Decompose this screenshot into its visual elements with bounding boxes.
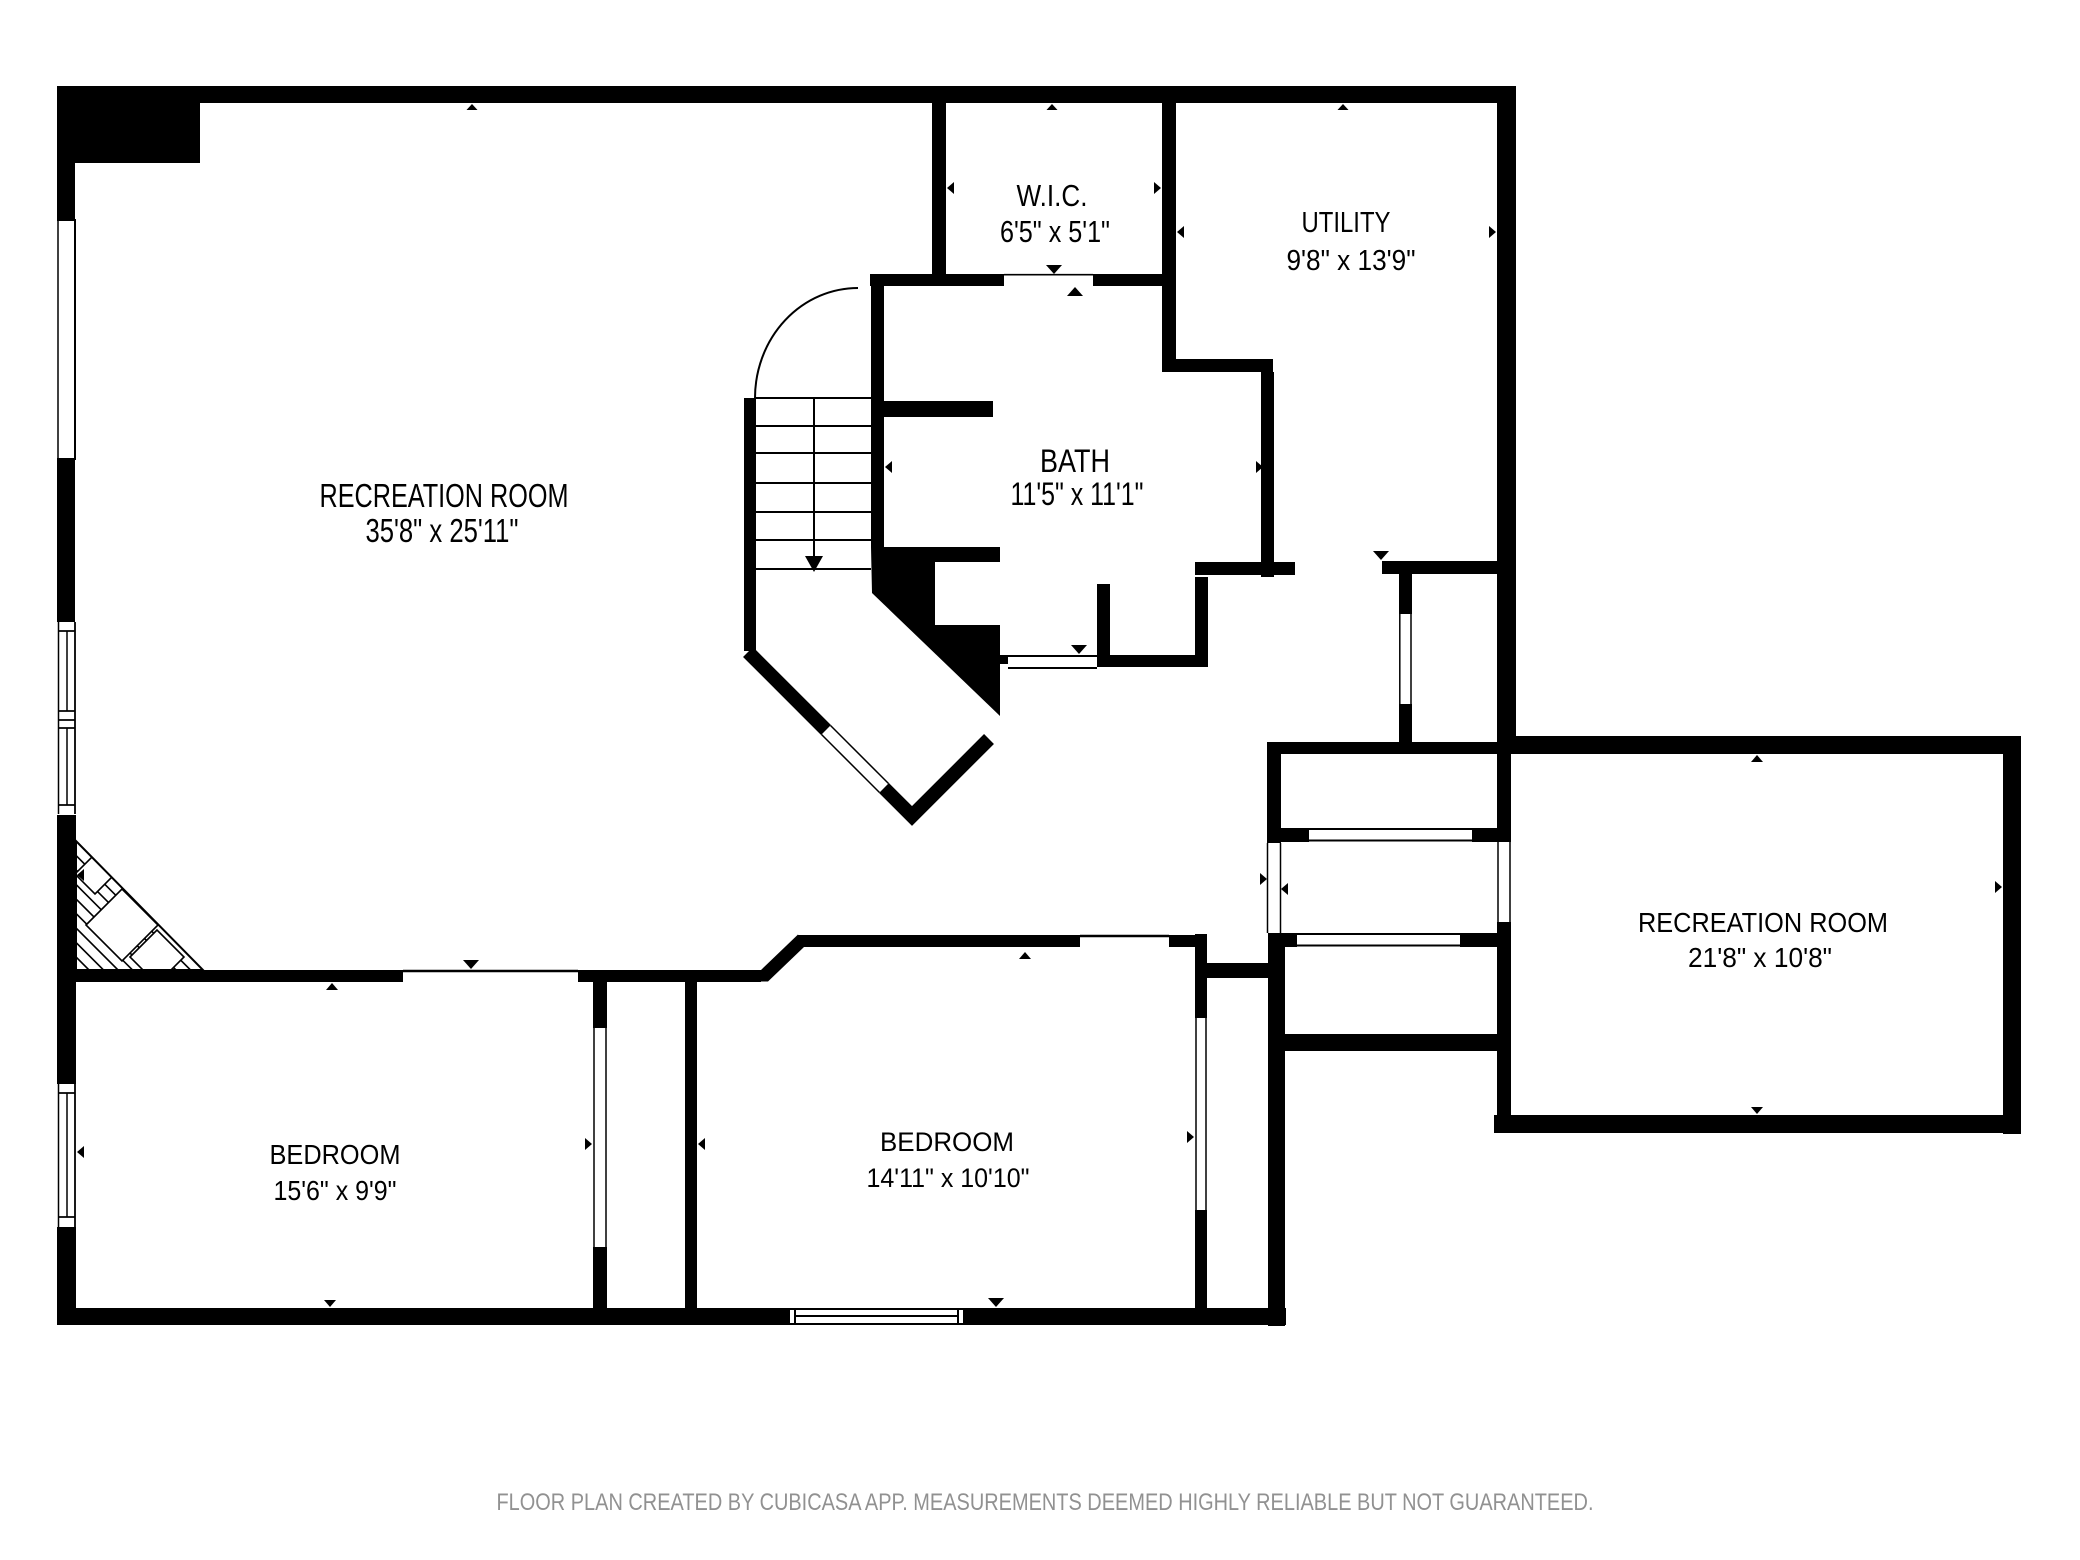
svg-text:35'8" x 25'11": 35'8" x 25'11" xyxy=(366,512,519,549)
svg-text:RECREATION ROOM: RECREATION ROOM xyxy=(1638,907,1888,938)
svg-text:W.I.C.: W.I.C. xyxy=(1017,178,1088,213)
svg-text:14'11" x 10'10": 14'11" x 10'10" xyxy=(867,1163,1030,1193)
svg-text:11'5" x 11'1": 11'5" x 11'1" xyxy=(1011,476,1144,512)
svg-text:21'8" x 10'8": 21'8" x 10'8" xyxy=(1688,942,1832,973)
svg-text:BATH: BATH xyxy=(1040,443,1110,479)
svg-text:BEDROOM: BEDROOM xyxy=(270,1139,401,1170)
svg-text:15'6" x 9'9": 15'6" x 9'9" xyxy=(274,1175,397,1206)
svg-text:UTILITY: UTILITY xyxy=(1302,207,1391,239)
svg-text:9'8" x 13'9": 9'8" x 13'9" xyxy=(1287,245,1416,277)
svg-text:FLOOR PLAN CREATED BY CUBICASA: FLOOR PLAN CREATED BY CUBICASA APP. MEAS… xyxy=(497,1489,1594,1516)
svg-text:RECREATION ROOM: RECREATION ROOM xyxy=(320,477,569,514)
svg-text:BEDROOM: BEDROOM xyxy=(880,1127,1014,1157)
svg-text:6'5" x 5'1": 6'5" x 5'1" xyxy=(1000,214,1110,249)
